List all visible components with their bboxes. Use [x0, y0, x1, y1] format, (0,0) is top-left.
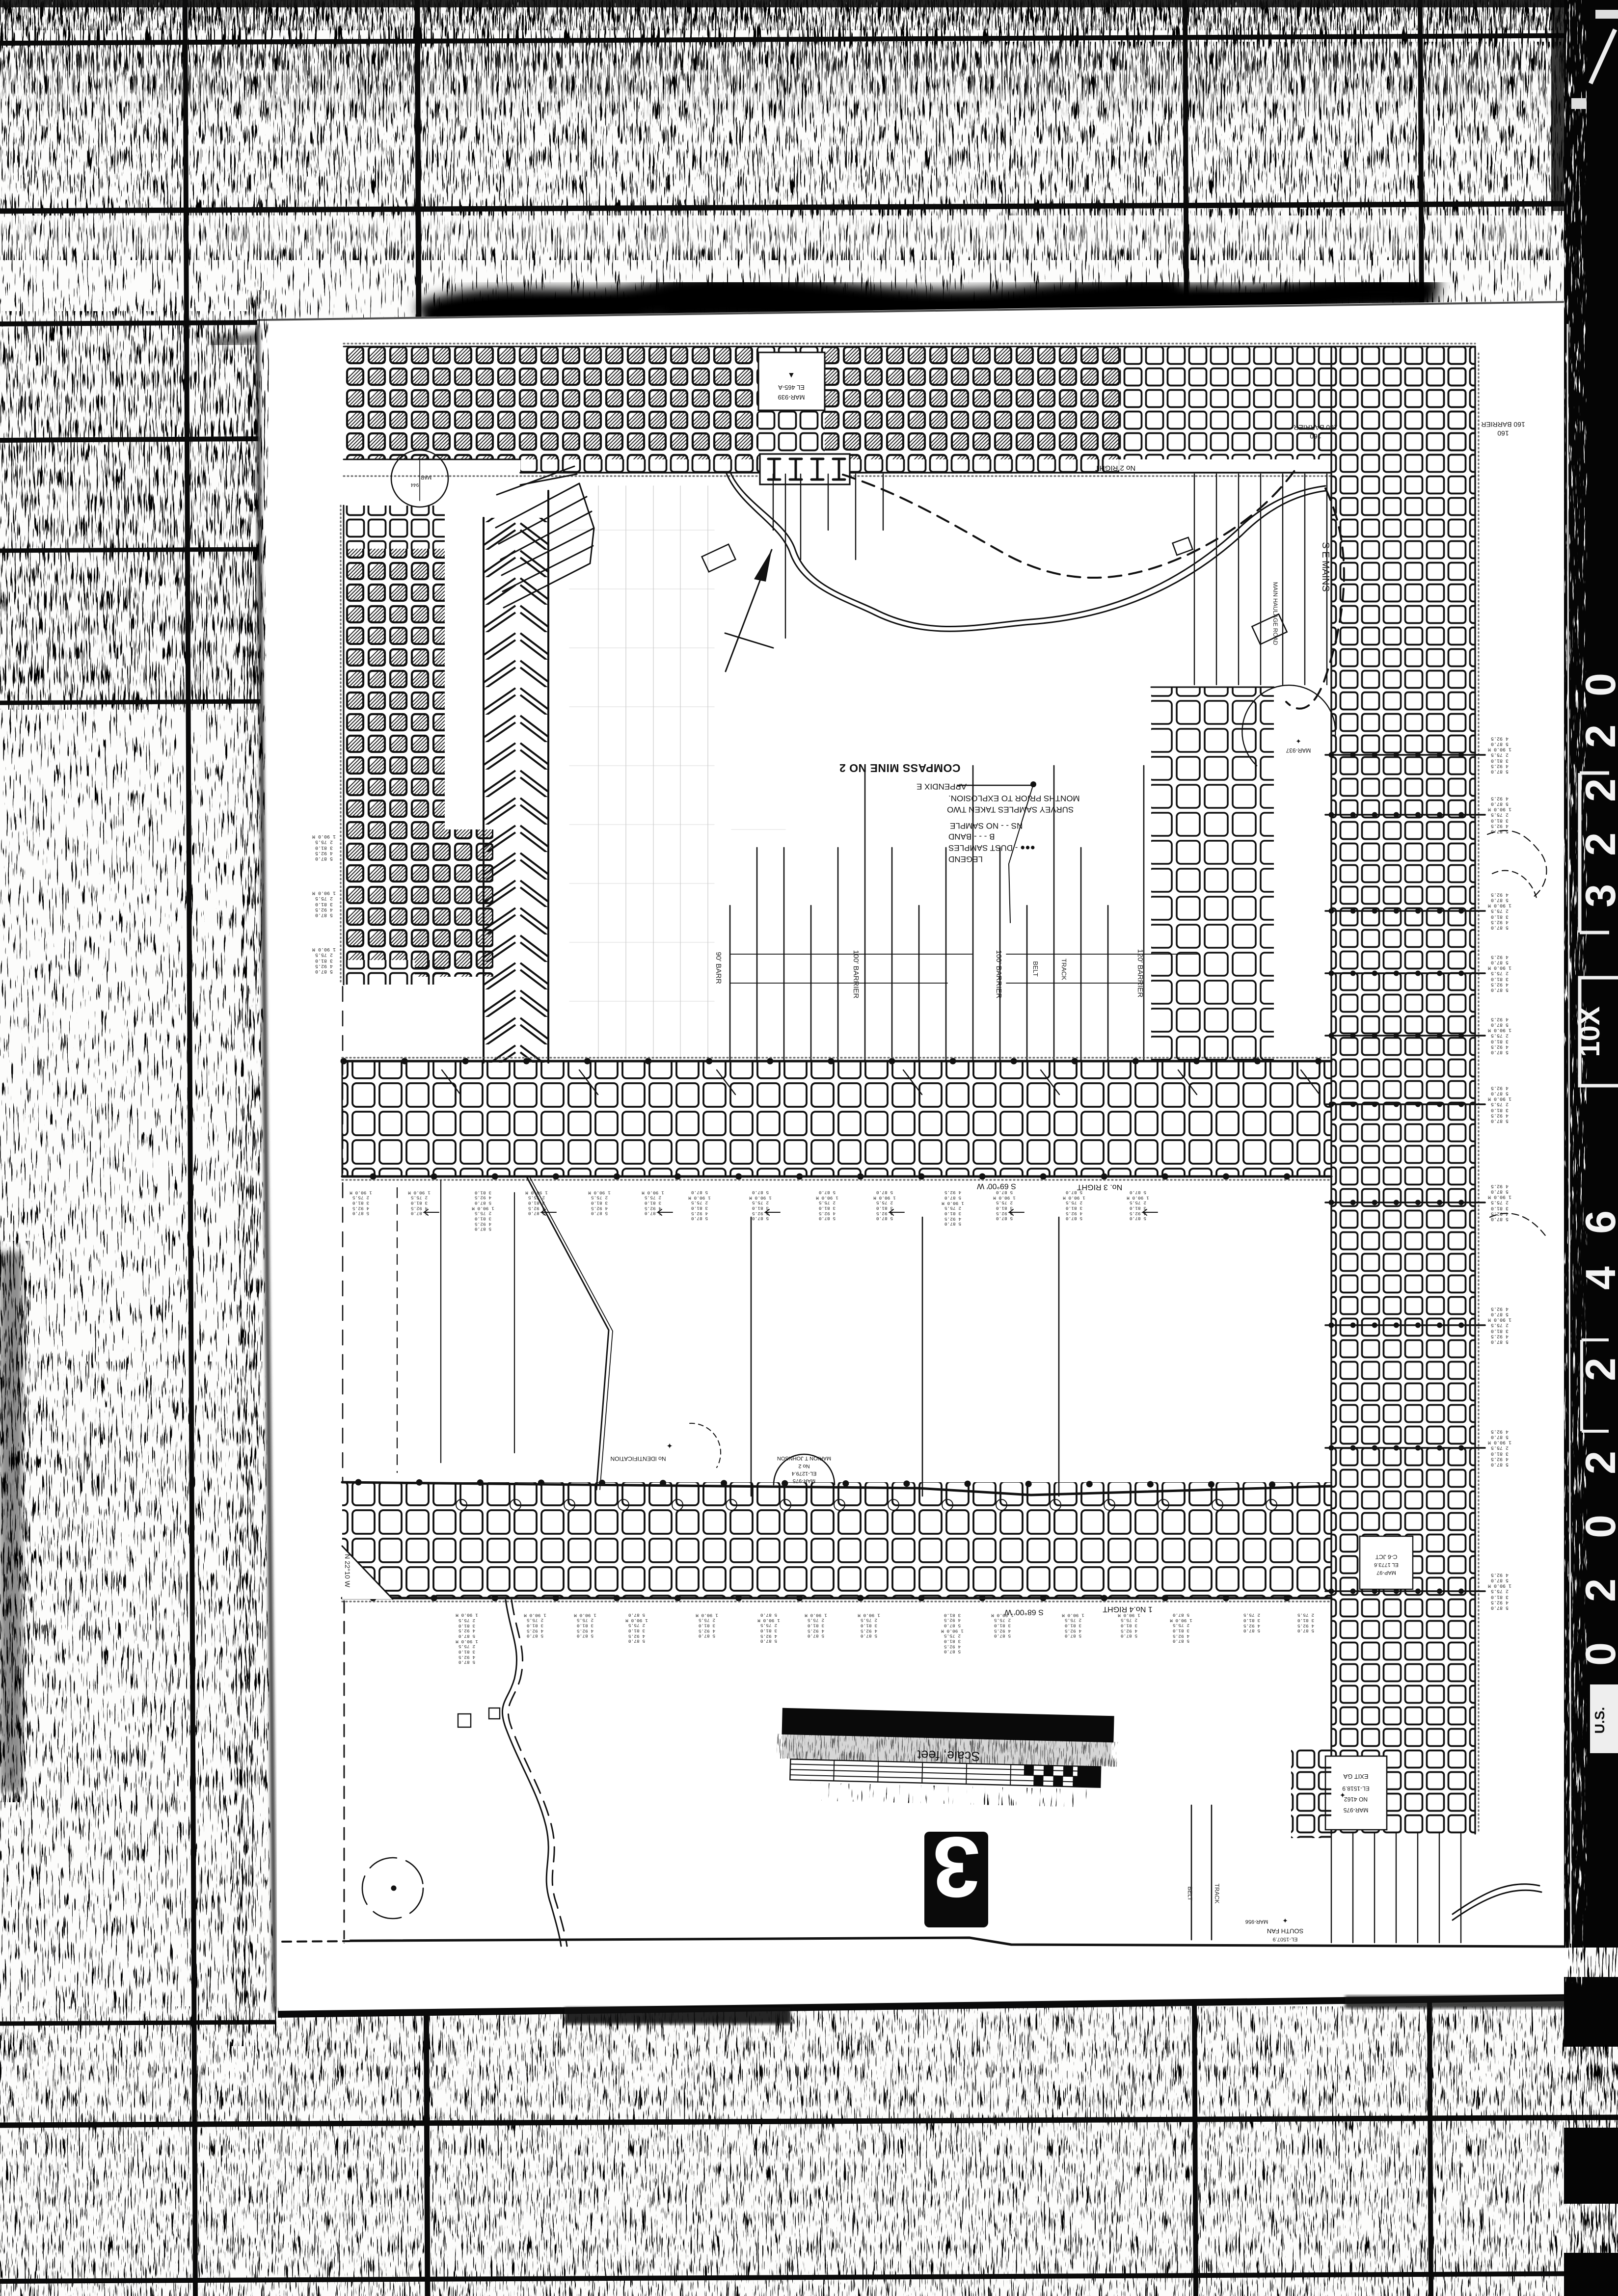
- svg-text:3 81.0: 3 81.0: [752, 1205, 769, 1211]
- svg-text:3 81.0: 3 81.0: [1121, 1623, 1138, 1629]
- svg-text:4 92.5: 4 92.5: [944, 1190, 962, 1195]
- svg-text:3 81.0: 3 81.0: [1066, 1205, 1083, 1211]
- svg-text:1 90.0 M: 1 90.0 M: [1488, 1316, 1511, 1322]
- svg-text:3 81.0: 3 81.0: [352, 1201, 370, 1206]
- svg-text:4 92.5: 4 92.5: [475, 1222, 492, 1227]
- svg-text:1 90.0 M: 1 90.0 M: [1488, 1027, 1511, 1032]
- svg-text:3 81.0: 3 81.0: [1491, 817, 1509, 823]
- svg-text:EL-1518.9: EL-1518.9: [1342, 1785, 1370, 1792]
- svg-text:1 90.0 M: 1 90.0 M: [1488, 746, 1511, 751]
- svg-text:4 92.5: 4 92.5: [591, 1206, 608, 1211]
- svg-text:NS - - NO SAMPLE: NS - - NO SAMPLE: [950, 821, 1023, 830]
- svg-text:4 92.5: 4 92.5: [1297, 1623, 1315, 1629]
- svg-text:4 92.5: 4 92.5: [1243, 1623, 1261, 1629]
- svg-text:5 87.0: 5 87.0: [1491, 987, 1509, 992]
- svg-text:4 92.5: 4 92.5: [1491, 1043, 1509, 1049]
- svg-text:944: 944: [410, 482, 419, 487]
- svg-text:3 81.0: 3 81.0: [1491, 976, 1509, 981]
- svg-text:4 92.5: 4 92.5: [315, 907, 333, 912]
- svg-text:4 92.5: 4 92.5: [628, 1633, 646, 1639]
- svg-text:1 90.0 M: 1 90.0 M: [312, 946, 336, 952]
- svg-text:5 87.0: 5 87.0: [1491, 1049, 1509, 1054]
- svg-text:MAR-937: MAR-937: [1286, 747, 1311, 754]
- svg-text:3 81.0: 3 81.0: [1491, 1328, 1509, 1333]
- svg-text:3 81.0: 3 81.0: [315, 845, 333, 850]
- svg-text:4 92.5: 4 92.5: [1121, 1629, 1138, 1634]
- svg-text:No 2 RIGHT: No 2 RIGHT: [1095, 464, 1136, 472]
- svg-text:4 92.5: 4 92.5: [1491, 1306, 1509, 1311]
- svg-text:4 92.5: 4 92.5: [1066, 1211, 1083, 1216]
- svg-text:4 92.5: 4 92.5: [1491, 1016, 1509, 1021]
- svg-text:S E MAINS: S E MAINS: [1320, 542, 1331, 591]
- svg-text:2 75.5: 2 75.5: [315, 895, 333, 901]
- svg-text:1 90.0 M: 1 90.0 M: [456, 1639, 478, 1644]
- svg-text:5 87.0: 5 87.0: [1491, 1021, 1509, 1027]
- svg-text:4 92.5: 4 92.5: [1173, 1633, 1190, 1639]
- svg-text:0: 0: [1577, 1642, 1618, 1666]
- svg-text:3 81.0: 3 81.0: [628, 1628, 646, 1633]
- svg-text:4 92.5: 4 92.5: [944, 1644, 961, 1650]
- svg-text:2: 2: [1577, 1358, 1618, 1381]
- svg-text:2 75.5: 2 75.5: [1243, 1612, 1261, 1618]
- svg-text:5 87.0: 5 87.0: [1491, 1216, 1509, 1221]
- svg-text:1 90.0 M: 1 90.0 M: [1488, 1194, 1511, 1199]
- svg-text:2 75.5: 2 75.5: [1491, 908, 1509, 913]
- svg-text:1 90.0 M: 1 90.0 M: [993, 1195, 1016, 1201]
- svg-text:1 90.0 M: 1 90.0 M: [805, 1613, 827, 1618]
- svg-text:4 92.5: 4 92.5: [1491, 795, 1509, 801]
- svg-text:TRACK: TRACK: [1060, 959, 1068, 980]
- svg-text:3 81.0: 3 81.0: [876, 1205, 893, 1211]
- svg-text:3 81.0: 3 81.0: [944, 1613, 961, 1618]
- svg-text:5 87.0: 5 87.0: [1491, 1188, 1509, 1194]
- svg-text:TRACK: TRACK: [1213, 1884, 1220, 1904]
- svg-text:4 92.5: 4 92.5: [760, 1633, 778, 1639]
- svg-text:1 90.0 M: 1 90.0 M: [1488, 1095, 1511, 1101]
- svg-text:5 87.0: 5 87.0: [1491, 1090, 1509, 1095]
- svg-text:5 87.0: 5 87.0: [1491, 959, 1509, 964]
- svg-text:5 87.0: 5 87.0: [819, 1190, 836, 1195]
- svg-text:2 75.5: 2 75.5: [315, 839, 333, 844]
- svg-text:1 90.0 M: 1 90.0 M: [1488, 1439, 1511, 1444]
- svg-text:5 87.0: 5 87.0: [996, 1190, 1013, 1195]
- svg-text:3 81.0: 3 81.0: [819, 1205, 836, 1211]
- svg-text:1 90.0 M: 1 90.0 M: [312, 833, 336, 839]
- svg-text:BELT: BELT: [1187, 1886, 1193, 1901]
- svg-text:3 81.0: 3 81.0: [458, 1649, 476, 1655]
- svg-text:5 87.0: 5 87.0: [315, 855, 333, 861]
- svg-text:2 75.5: 2 75.5: [1491, 1322, 1509, 1327]
- svg-text:MAR: MAR: [421, 475, 431, 480]
- svg-text:3 81.0: 3 81.0: [1065, 1623, 1082, 1629]
- svg-text:3 81.0: 3 81.0: [1491, 1038, 1509, 1043]
- svg-text:1 90.0 M: 1 90.0 M: [696, 1613, 718, 1618]
- svg-text:90′ BARR: 90′ BARR: [714, 952, 723, 984]
- svg-text:4 92.5: 4 92.5: [577, 1629, 594, 1634]
- svg-text:LEGEND: LEGEND: [948, 854, 983, 864]
- svg-text:MAR-956: MAR-956: [1245, 1919, 1268, 1924]
- svg-text:3 81.0: 3 81.0: [577, 1623, 594, 1629]
- svg-text:3: 3: [932, 1819, 980, 1915]
- svg-text:5 87.0: 5 87.0: [458, 1633, 476, 1639]
- svg-text:3 81.0: 3 81.0: [475, 1190, 492, 1196]
- svg-text:2 75.5: 2 75.5: [1491, 811, 1509, 817]
- svg-text:1 90.0 M: 1 90.0 M: [642, 1190, 664, 1196]
- svg-text:1 No.4 RIGHT: 1 No.4 RIGHT: [1103, 1605, 1153, 1613]
- svg-text:1 90.0 M: 1 90.0 M: [942, 1201, 964, 1206]
- svg-text:4 92.5: 4 92.5: [645, 1206, 662, 1211]
- svg-text:4 92.5: 4 92.5: [1491, 735, 1509, 741]
- svg-text:3 81.0: 3 81.0: [760, 1628, 778, 1633]
- svg-text:EXIT GA: EXIT GA: [1343, 1773, 1368, 1780]
- svg-text:5 87.0: 5 87.0: [944, 1623, 961, 1629]
- svg-text:5 87.0: 5 87.0: [1491, 1577, 1509, 1582]
- svg-text:1 90.0 M: 1 90.0 M: [574, 1613, 596, 1618]
- svg-text:0: 0: [1577, 1515, 1618, 1538]
- svg-text:1 90.0 M: 1 90.0 M: [688, 1195, 711, 1201]
- svg-text:SURVEY SAMPLES TAKEN TWO: SURVEY SAMPLES TAKEN TWO: [947, 805, 1074, 814]
- svg-text:4 92.5: 4 92.5: [411, 1206, 428, 1211]
- svg-text:4 92.5: 4 92.5: [1491, 1085, 1509, 1090]
- svg-text:3 81.0: 3 81.0: [699, 1623, 716, 1629]
- svg-text:3 81.0: 3 81.0: [1173, 1628, 1190, 1633]
- svg-text:1 90.0 M: 1 90.0 M: [816, 1195, 838, 1201]
- svg-text:✦: ✦: [1340, 1790, 1346, 1799]
- svg-text:4 92.5: 4 92.5: [527, 1629, 544, 1634]
- svg-text:2 75.5: 2 75.5: [1491, 1588, 1509, 1593]
- svg-text:1 90.0 M: 1 90.0 M: [1488, 1582, 1511, 1588]
- svg-text:BELT: BELT: [1032, 961, 1039, 977]
- svg-text:3 81.0: 3 81.0: [475, 1216, 492, 1222]
- svg-text:5 87.0: 5 87.0: [1066, 1190, 1083, 1195]
- svg-text:3 81.0: 3 81.0: [944, 1639, 961, 1644]
- svg-text:3 81.0: 3 81.0: [1243, 1618, 1261, 1623]
- svg-text:1 90.0 M: 1 90.0 M: [941, 1629, 964, 1634]
- svg-text:EL-1507.9: EL-1507.9: [1273, 1936, 1298, 1942]
- svg-text:5 87.0: 5 87.0: [1491, 1604, 1509, 1610]
- svg-text:5 87.0: 5 87.0: [1491, 1338, 1509, 1344]
- svg-text:✦: ✦: [1282, 1917, 1288, 1924]
- svg-text:1 90.0 M: 1 90.0 M: [1488, 964, 1511, 970]
- svg-text:2 75.5: 2 75.5: [1297, 1612, 1315, 1618]
- svg-text:1 90.0 M: 1 90.0 M: [1488, 902, 1511, 908]
- svg-text:10X: 10X: [1574, 1006, 1606, 1057]
- svg-text:5 87.0: 5 87.0: [876, 1190, 893, 1195]
- svg-text:1 90.0 M: 1 90.0 M: [524, 1613, 546, 1618]
- svg-text:B - - - BAND: B - - - BAND: [948, 832, 995, 841]
- svg-text:4 92.5: 4 92.5: [1491, 823, 1509, 828]
- svg-text:160 BARRIER: 160 BARRIER: [1481, 421, 1525, 428]
- svg-text:5 87.0: 5 87.0: [1491, 801, 1509, 806]
- svg-text:MAP-97: MAP-97: [1376, 1570, 1396, 1575]
- svg-text:2 75.5: 2 75.5: [315, 952, 333, 957]
- svg-text:4 92.5: 4 92.5: [1065, 1629, 1082, 1634]
- svg-text:5 87.0: 5 87.0: [1130, 1190, 1147, 1195]
- svg-text:4 92.5: 4 92.5: [1491, 1112, 1509, 1118]
- svg-text:3 81.0: 3 81.0: [1491, 913, 1509, 919]
- svg-text:4 92.5: 4 92.5: [819, 1211, 836, 1216]
- svg-text:4 92.5: 4 92.5: [1491, 1333, 1509, 1338]
- svg-text:NO 4162: NO 4162: [1344, 1796, 1368, 1803]
- svg-text:▲: ▲: [787, 371, 795, 379]
- svg-text:5 87.0: 5 87.0: [315, 968, 333, 974]
- svg-text:✦: ✦: [666, 1441, 673, 1449]
- svg-text:No 2: No 2: [798, 1463, 809, 1469]
- svg-text:3 81.0: 3 81.0: [645, 1201, 662, 1206]
- svg-text:4 92.5: 4 92.5: [1491, 1183, 1509, 1188]
- svg-text:6: 6: [1577, 1210, 1618, 1234]
- svg-text:5 87.0: 5 87.0: [1173, 1612, 1190, 1618]
- svg-text:4 92.5: 4 92.5: [458, 1655, 476, 1660]
- svg-text:1 90.0 M: 1 90.0 M: [408, 1190, 431, 1196]
- svg-text:5 87.0: 5 87.0: [628, 1612, 646, 1618]
- svg-text:4 92.5: 4 92.5: [315, 963, 333, 968]
- svg-text:4 92.5: 4 92.5: [1491, 954, 1509, 959]
- svg-text:2: 2: [1577, 1451, 1618, 1474]
- svg-text:SOUTH FAN: SOUTH FAN: [1267, 1927, 1303, 1935]
- svg-text:3 81.0: 3 81.0: [1491, 757, 1509, 763]
- svg-text:4 92.5: 4 92.5: [1491, 981, 1509, 987]
- svg-text:3 81.0: 3 81.0: [1297, 1618, 1315, 1623]
- svg-text:✦: ✦: [1295, 737, 1301, 745]
- svg-text:S 68°00′ W: S 68°00′ W: [1004, 1608, 1044, 1616]
- svg-text:160: 160: [1310, 432, 1321, 440]
- svg-text:1 90.0 M: 1 90.0 M: [350, 1190, 372, 1196]
- svg-text:EL-1279.4: EL-1279.4: [792, 1470, 817, 1476]
- svg-text:4 92.5: 4 92.5: [1491, 1428, 1509, 1434]
- svg-text:3 81.0: 3 81.0: [591, 1201, 608, 1206]
- svg-text:C-6 JCT: C-6 JCT: [1375, 1553, 1397, 1560]
- svg-text:N 22°10 W: N 22°10 W: [344, 1554, 351, 1588]
- svg-text:100′ BARRIER: 100′ BARRIER: [852, 950, 860, 999]
- svg-text:3 81.0: 3 81.0: [691, 1205, 708, 1211]
- svg-text:3 81.0: 3 81.0: [996, 1205, 1013, 1211]
- svg-text:MARION T JOHNSON: MARION T JOHNSON: [777, 1455, 831, 1461]
- svg-text:1 90.0 M: 1 90.0 M: [625, 1618, 648, 1623]
- svg-text:3 81.0: 3 81.0: [411, 1201, 428, 1206]
- svg-text:1 90.0 M: 1 90.0 M: [1170, 1618, 1192, 1623]
- svg-text:4 92.5: 4 92.5: [1491, 1572, 1509, 1577]
- svg-text:EL 465-A: EL 465-A: [778, 384, 805, 391]
- svg-text:1 90.0 M: 1 90.0 M: [456, 1612, 478, 1618]
- svg-text:2 75.5: 2 75.5: [1491, 1032, 1509, 1038]
- svg-text:1 90.0 M: 1 90.0 M: [873, 1195, 896, 1201]
- svg-text:2 75.5: 2 75.5: [458, 1618, 476, 1623]
- svg-text:5 87.0: 5 87.0: [1491, 741, 1509, 746]
- svg-text:4 92.5: 4 92.5: [1491, 1456, 1509, 1461]
- svg-text:3 81.0: 3 81.0: [808, 1623, 825, 1629]
- svg-text:3 81.0: 3 81.0: [315, 901, 333, 907]
- svg-text:4 92.5: 4 92.5: [1491, 1599, 1509, 1604]
- svg-text:4 92.5: 4 92.5: [808, 1629, 825, 1634]
- svg-text:1 90.0 M: 1 90.0 M: [312, 890, 336, 895]
- svg-text:160: 160: [1497, 429, 1509, 437]
- svg-text:3 81.0: 3 81.0: [1491, 1594, 1509, 1599]
- svg-text:3 81.0: 3 81.0: [1491, 1107, 1509, 1112]
- svg-text:●●● - DUST SAMPLES: ●●● - DUST SAMPLES: [948, 843, 1035, 853]
- svg-text:5 87.0: 5 87.0: [1491, 897, 1509, 902]
- svg-text:1 90.0 M: 1 90.0 M: [858, 1613, 880, 1618]
- svg-text:4 92.5: 4 92.5: [315, 850, 333, 855]
- svg-text:3 81.0: 3 81.0: [1491, 1450, 1509, 1456]
- svg-text:4 92.5: 4 92.5: [1491, 891, 1509, 897]
- svg-text:5 87.0: 5 87.0: [1491, 1434, 1509, 1439]
- svg-text:APPENDIX E: APPENDIX E: [917, 782, 967, 791]
- svg-text:5 87.0: 5 87.0: [760, 1612, 778, 1618]
- svg-text:2 75.5: 2 75.5: [1491, 751, 1509, 757]
- svg-text:5 87.0: 5 87.0: [944, 1195, 962, 1201]
- svg-text:4 92.5: 4 92.5: [1491, 763, 1509, 768]
- svg-text:2 75.5: 2 75.5: [1491, 1199, 1509, 1204]
- svg-text:3 81.0: 3 81.0: [315, 958, 333, 963]
- svg-text:2: 2: [1577, 832, 1618, 856]
- svg-text:3 81.0: 3 81.0: [944, 1211, 962, 1216]
- svg-text:4 92.5: 4 92.5: [944, 1216, 962, 1222]
- svg-text:4 92.5: 4 92.5: [1491, 919, 1509, 924]
- svg-text:1 90.0 M: 1 90.0 M: [757, 1618, 780, 1623]
- svg-text:1 90.0 M: 1 90.0 M: [1127, 1195, 1149, 1201]
- svg-text:5 87.0: 5 87.0: [1491, 768, 1509, 774]
- svg-text:2: 2: [1577, 778, 1618, 802]
- svg-text:5 87.0: 5 87.0: [1491, 924, 1509, 930]
- svg-text:4 92.5: 4 92.5: [352, 1206, 370, 1211]
- svg-text:1 90.0 M: 1 90.0 M: [472, 1206, 494, 1211]
- svg-text:Scale, feet: Scale, feet: [917, 1748, 980, 1764]
- svg-text:2: 2: [1577, 1578, 1618, 1602]
- svg-text:5 87.0: 5 87.0: [1491, 1461, 1509, 1467]
- svg-text:No IDENTIFICATION: No IDENTIFICATION: [610, 1455, 666, 1462]
- svg-text:5 87.0: 5 87.0: [691, 1190, 708, 1195]
- svg-text:1 90.0 M: 1 90.0 M: [1488, 806, 1511, 811]
- svg-text:5 87.0: 5 87.0: [1491, 1118, 1509, 1123]
- svg-text:3 81.0: 3 81.0: [458, 1623, 476, 1629]
- svg-text:4 92.5: 4 92.5: [691, 1211, 708, 1216]
- svg-text:MAIN HAULAGE ROAD: MAIN HAULAGE ROAD: [1272, 582, 1279, 645]
- svg-text:4 92.5: 4 92.5: [994, 1629, 1011, 1634]
- svg-text:1 90.0 M: 1 90.0 M: [1062, 1613, 1084, 1618]
- svg-text:MAR-975: MAR-975: [1343, 1807, 1368, 1814]
- svg-text:3 81.0: 3 81.0: [861, 1623, 878, 1629]
- svg-text:2 75.5: 2 75.5: [1491, 1101, 1509, 1106]
- svg-text:U.S.: U.S.: [1592, 1707, 1607, 1734]
- svg-text:1 90.0 M: 1 90.0 M: [588, 1190, 611, 1196]
- svg-text:3: 3: [1577, 884, 1618, 908]
- svg-text:1 90.0 M: 1 90.0 M: [749, 1195, 772, 1201]
- svg-text:5 87.0: 5 87.0: [752, 1190, 769, 1195]
- svg-text:3 81.0: 3 81.0: [527, 1623, 544, 1629]
- svg-text:COMPASS MINE NO 2: COMPASS MINE NO 2: [839, 762, 960, 774]
- svg-text:2 75.5: 2 75.5: [1491, 970, 1509, 975]
- svg-text:5 87.0: 5 87.0: [315, 912, 333, 917]
- svg-text:3 81.0: 3 81.0: [1491, 1205, 1509, 1210]
- svg-text:120′ BARRIER: 120′ BARRIER: [1136, 949, 1144, 998]
- svg-text:5 87.0: 5 87.0: [1491, 1311, 1509, 1316]
- svg-text:1 90.0 M: 1 90.0 M: [1063, 1195, 1085, 1201]
- svg-text:0: 0: [1577, 673, 1618, 696]
- svg-text:EL 1773.6: EL 1773.6: [1374, 1562, 1399, 1568]
- svg-text:5 87.0: 5 87.0: [475, 1201, 492, 1206]
- svg-text:3 81.0: 3 81.0: [1130, 1205, 1147, 1211]
- svg-text:3 81.0: 3 81.0: [994, 1623, 1011, 1629]
- svg-text:No. 3 RIGHT: No. 3 RIGHT: [1077, 1183, 1123, 1191]
- svg-text:4 92.5: 4 92.5: [699, 1629, 716, 1634]
- svg-text:S 69°00′ W: S 69°00′ W: [976, 1182, 1016, 1190]
- svg-text:MONTHS PRIOR TO EXPLOSION.: MONTHS PRIOR TO EXPLOSION.: [948, 794, 1080, 803]
- svg-text:2: 2: [1577, 724, 1618, 748]
- svg-text:4 92.5: 4 92.5: [861, 1629, 878, 1634]
- svg-text:100′ BARRIER: 100′ BARRIER: [995, 950, 1003, 999]
- svg-text:MAR-939: MAR-939: [778, 394, 805, 401]
- svg-text:2 75.5: 2 75.5: [1491, 1444, 1509, 1450]
- svg-text:4: 4: [1577, 1266, 1618, 1290]
